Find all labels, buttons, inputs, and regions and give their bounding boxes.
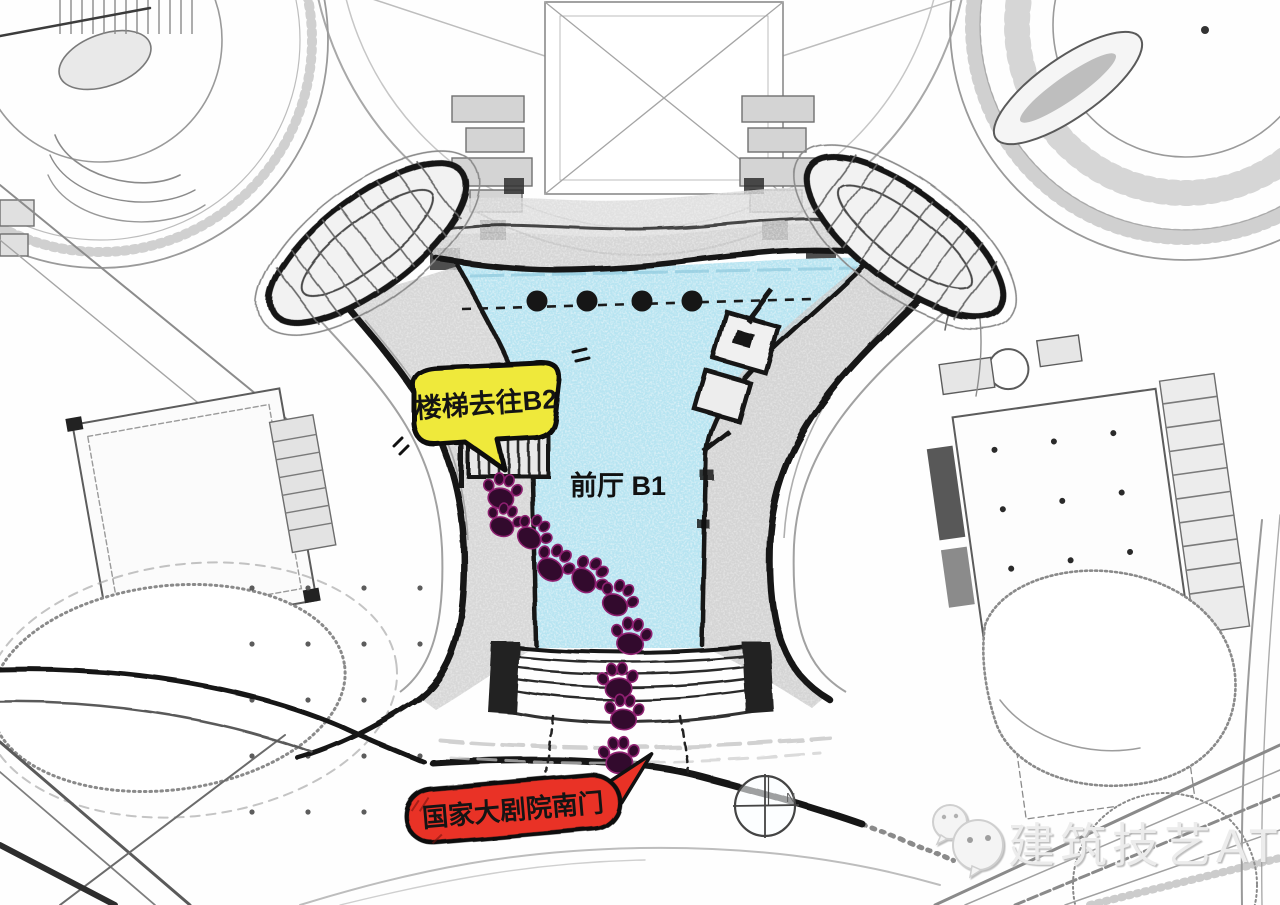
floor-plan-page: 楼梯去往B2 前厅 B1 国家大剧院南门 N 建筑技艺AT: [0, 0, 1280, 905]
wechat-icon: [933, 805, 1003, 877]
foyer-label: 前厅 B1: [570, 470, 666, 501]
column-dot: [527, 291, 548, 312]
compass: N: [733, 774, 799, 838]
compass-north-label: N: [786, 790, 795, 805]
column-dot: [577, 291, 598, 312]
watermark-text: 建筑技艺AT: [1008, 819, 1280, 872]
column-dot: [632, 291, 653, 312]
paw-print: [602, 693, 647, 732]
column-dot: [682, 291, 703, 312]
floor-plan-drawing: 楼梯去往B2 前厅 B1 国家大剧院南门 N 建筑技艺AT: [0, 0, 1280, 905]
